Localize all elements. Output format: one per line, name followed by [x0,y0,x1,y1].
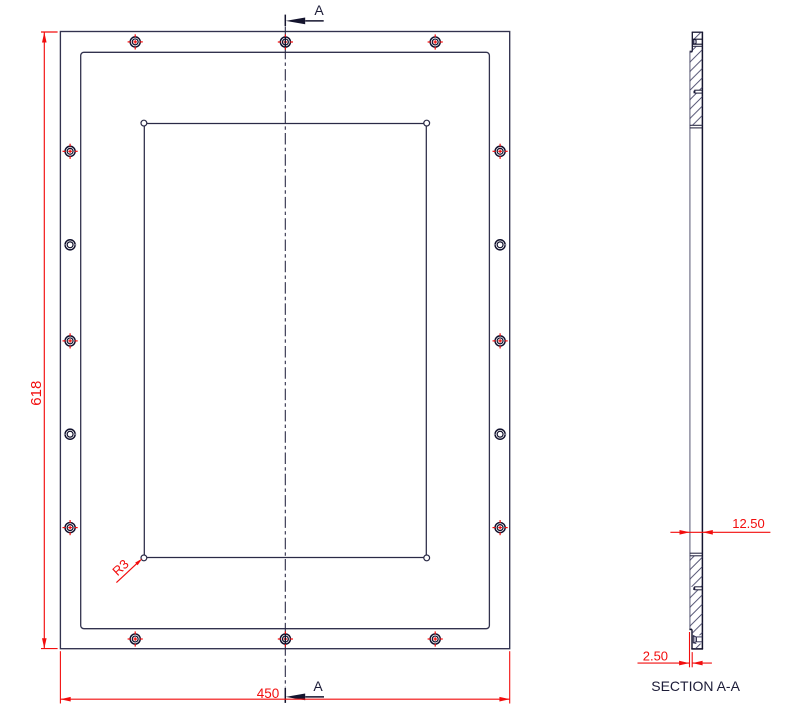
svg-text:450: 450 [257,686,280,701]
svg-text:A: A [313,678,323,694]
svg-text:A: A [314,2,324,18]
svg-text:12.50: 12.50 [732,516,765,531]
svg-text:SECTION A-A: SECTION A-A [651,678,740,694]
svg-text:2.50: 2.50 [643,649,668,664]
svg-text:618: 618 [28,381,45,406]
svg-text:R3: R3 [109,556,131,578]
